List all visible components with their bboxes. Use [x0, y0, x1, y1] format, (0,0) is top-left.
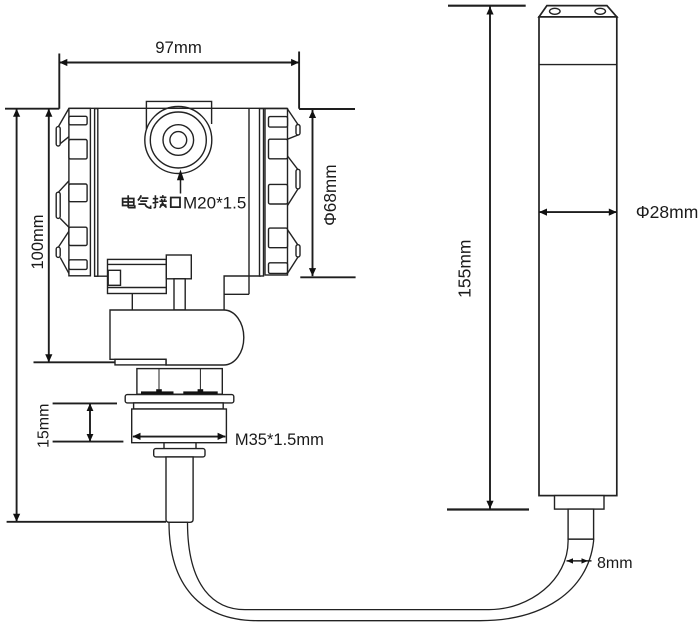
svg-text:97mm: 97mm: [155, 38, 202, 57]
svg-text:155mm: 155mm: [454, 240, 474, 298]
svg-text:M20*1.5: M20*1.5: [183, 193, 246, 212]
svg-text:Φ68mm: Φ68mm: [320, 164, 340, 225]
svg-text:15mm: 15mm: [35, 404, 52, 448]
svg-text:M35*1.5mm: M35*1.5mm: [235, 431, 324, 449]
svg-text:100mm: 100mm: [29, 214, 47, 269]
svg-text:8mm: 8mm: [597, 555, 633, 572]
svg-text:Φ28mm: Φ28mm: [636, 202, 699, 222]
